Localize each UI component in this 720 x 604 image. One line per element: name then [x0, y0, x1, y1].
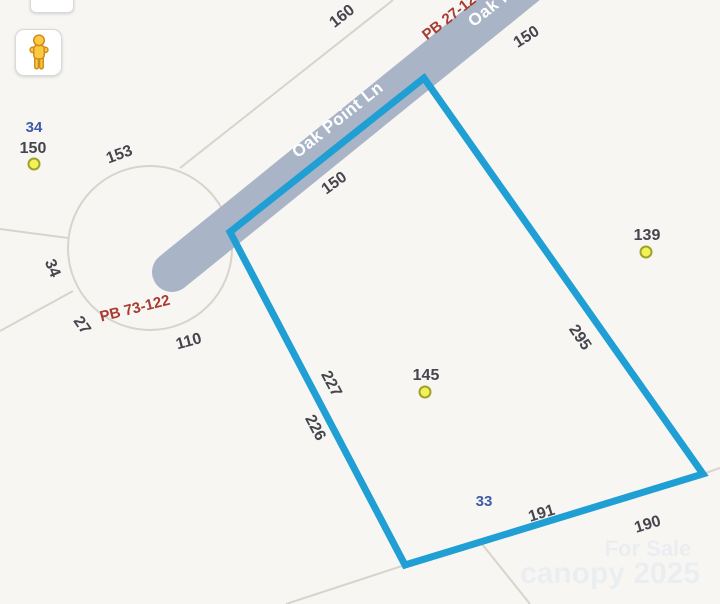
watermark-text: canopy 2025 — [520, 557, 700, 590]
dimension-label: 150 — [20, 140, 47, 157]
dimension-label: 145 — [413, 367, 440, 384]
parcel-marker-dot — [641, 247, 652, 258]
street-view-pegman-icon — [26, 34, 52, 72]
parcel-marker-dot — [420, 387, 431, 398]
plat-map: 160PB 27-12Oak Point Ln150Oak Point Ln15… — [0, 0, 720, 604]
lot-number-label: 33 — [476, 493, 493, 510]
lot-number-label: 34 — [26, 119, 43, 136]
parcel-marker-dot — [29, 159, 40, 170]
plat-map-canvas[interactable]: 160PB 27-12Oak Point Ln150Oak Point Ln15… — [0, 0, 720, 604]
map-control-partial[interactable] — [30, 0, 74, 13]
street-view-button[interactable] — [15, 29, 62, 76]
dimension-label: 139 — [634, 227, 661, 244]
